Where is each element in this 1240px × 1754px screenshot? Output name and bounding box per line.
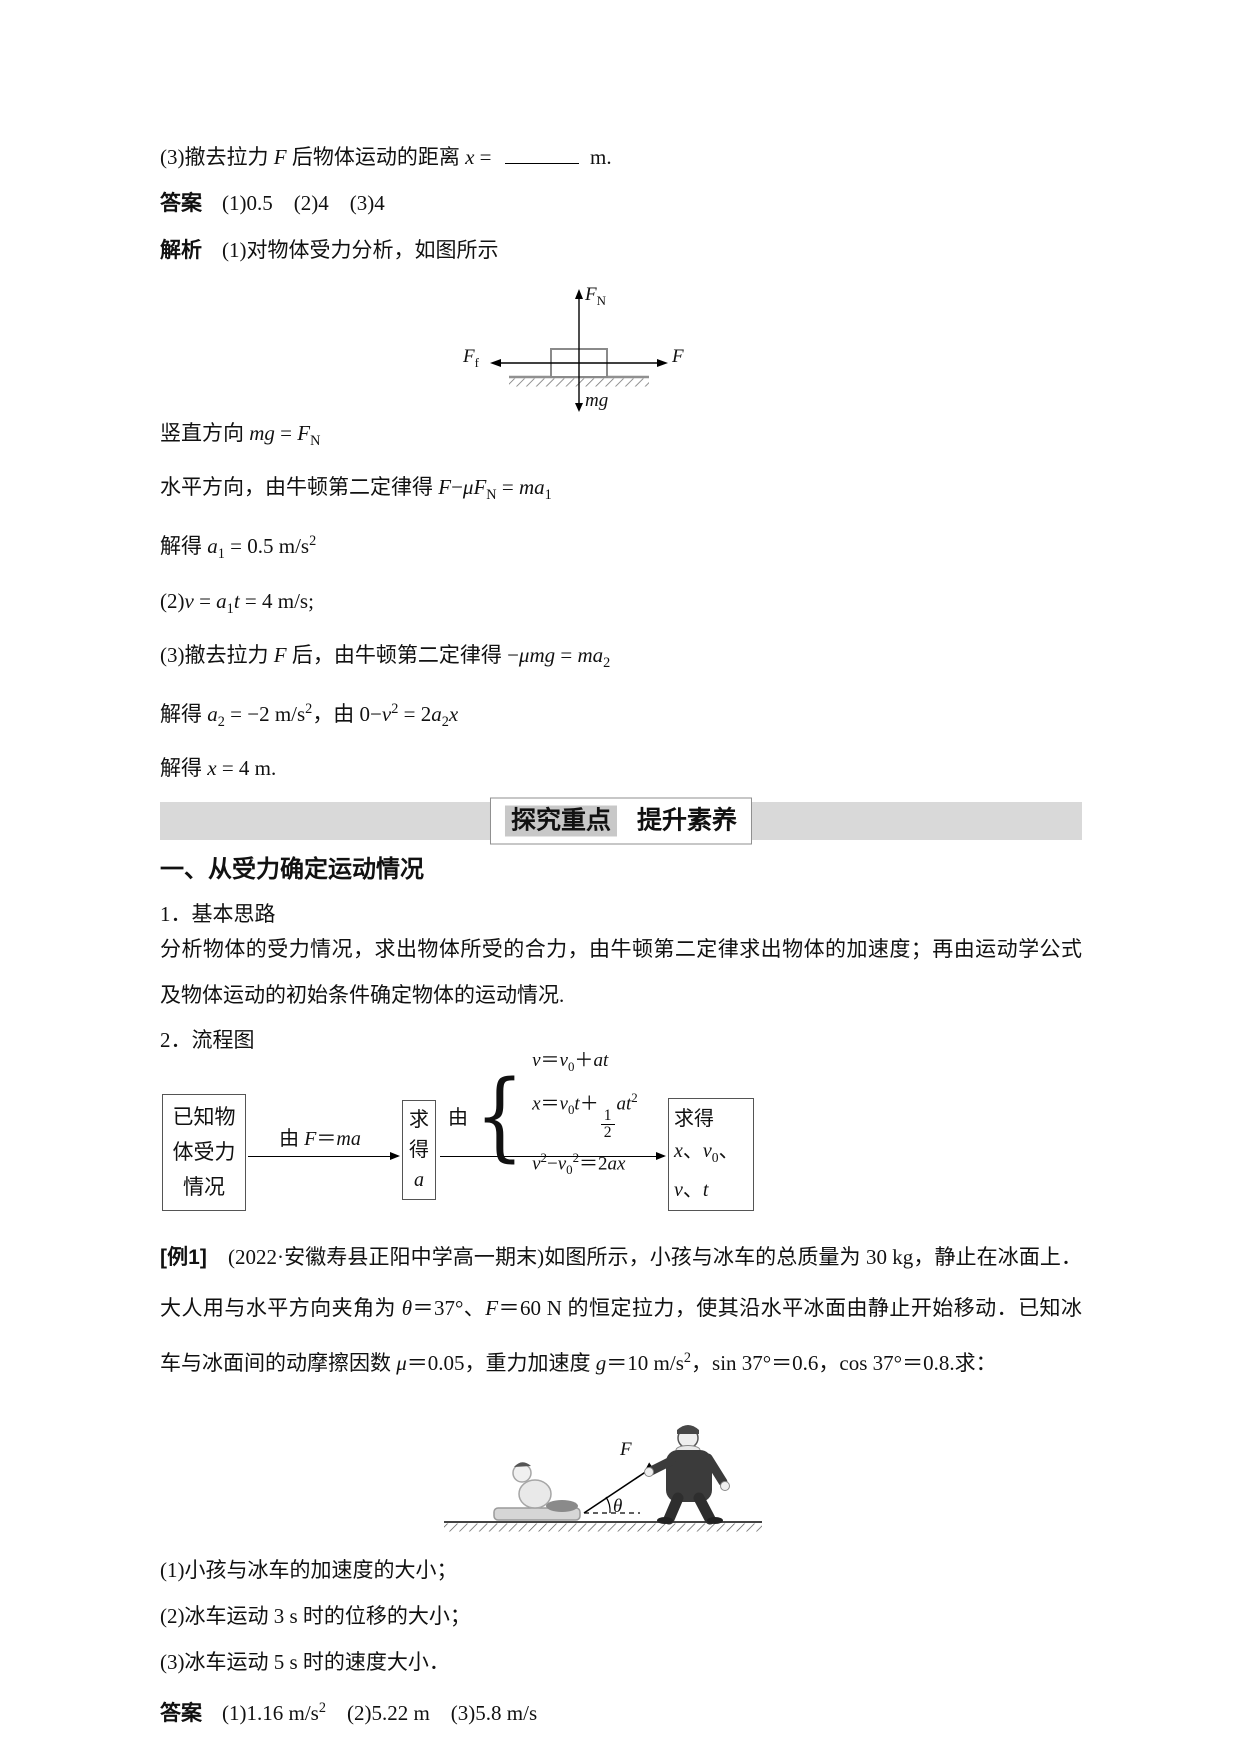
example-question-1: (1)小孩与冰车的加速度的大小； — [160, 1558, 1082, 1582]
free-body-diagram-svg — [459, 285, 699, 413]
flowchart-box-solve-motion: 求得x、v0、v、t — [668, 1098, 754, 1211]
subsection-1-title: 1．基本思路 — [160, 902, 1082, 926]
solution-step: (3)撤去拉力 F 后，由牛顿第二定律得 −μmg = ma2 — [160, 643, 1082, 675]
solution-step: 解得 a1 = 0.5 m/s2 — [160, 529, 1082, 566]
flowchart-box-solve-a: 求得a — [402, 1100, 436, 1200]
solution-step: 解得 a2 = −2 m/s2，由 0−v2 = 2a2x — [160, 697, 1082, 734]
solution-step: 水平方向，由牛顿第二定律得 F−μFN = ma1 — [160, 475, 1082, 507]
section-heading: 一、从受力确定运动情况 — [160, 856, 1082, 884]
banner-right-title: 提升素养 — [637, 809, 737, 834]
label-angle-theta: θ — [613, 1497, 622, 1516]
label-pull-force: F — [620, 1440, 632, 1459]
sled-pull-illustration-svg — [438, 1394, 768, 1544]
flowchart-box-known-forces: 已知物体受力情况 — [162, 1094, 246, 1211]
answer-label: 答案 — [160, 192, 202, 215]
free-body-diagram: FN Ff F mg — [459, 285, 699, 413]
sled-with-child — [494, 1462, 580, 1520]
equation-2: x＝v0t＋12at2 — [532, 1083, 638, 1142]
analysis-intro: (1)对物体受力分析，如图所示 — [222, 238, 499, 262]
adult-figure — [645, 1425, 730, 1524]
example-question-3: (3)冰车运动 5 s 时的速度大小． — [160, 1650, 1082, 1674]
label-friction-force: Ff — [463, 347, 479, 370]
sled-pull-illustration: F θ — [438, 1394, 768, 1544]
equation-3: v2−v02＝2ax — [532, 1143, 638, 1185]
label-gravity: mg — [585, 391, 608, 410]
flowchart-arrow-1 — [248, 1156, 398, 1157]
solution-step: (2)v = a1t = 4 m/s; — [160, 589, 1082, 621]
example-answer-line: 答案(1)1.16 m/s2 (2)5.22 m (3)5.8 m/s — [160, 1696, 1082, 1726]
document-page: (3)撤去拉力 F 后物体运动的距离 x = m. 答案(1)0.5 (2)4 … — [160, 142, 1082, 1726]
example-1-paragraph: [例1] (2022·安徽寿县正阳中学高一期末)如图所示，小孩与冰车的总质量为 … — [160, 1232, 1082, 1388]
example-answer-values: (1)1.16 m/s2 (2)5.22 m (3)5.8 m/s — [222, 1701, 537, 1725]
basic-idea-paragraph: 分析物体的受力情况，求出物体所受的合力，由牛顿第二定律求出物体的加速度；再由运动… — [160, 926, 1082, 1018]
analysis-line: 解析(1)对物体受力分析，如图所示 — [160, 238, 1082, 263]
question-3-line: (3)撤去拉力 F 后物体运动的距离 x = m. — [160, 142, 1082, 169]
flowchart-arrow-1-label: 由 F＝ma — [240, 1122, 400, 1151]
kinematics-equations: v＝v0＋at x＝v0t＋12at2 v2−v02＝2ax — [532, 1046, 638, 1185]
answer-line-1: 答案(1)0.5 (2)4 (3)4 — [160, 191, 1082, 216]
section-banner: 探究重点提升素养 — [160, 802, 1082, 840]
example-question-2: (2)冰车运动 3 s 时的位移的大小； — [160, 1604, 1082, 1628]
banner-left-title: 探究重点 — [505, 806, 617, 837]
label-applied-force: F — [672, 347, 684, 366]
solution-step: 解得 x = 4 m. — [160, 756, 1082, 780]
example-answer-label: 答案 — [160, 1702, 202, 1725]
section-banner-box: 探究重点提升素养 — [490, 798, 752, 845]
flowchart: 已知物体受力情况 由 F＝ma 求得a 由 { v＝v0＋at x＝v0t＋12… — [162, 1060, 1082, 1218]
flowchart-by-label: 由 — [448, 1101, 468, 1130]
answer-values: (1)0.5 (2)4 (3)4 — [222, 191, 385, 215]
equation-1: v＝v0＋at — [532, 1046, 638, 1082]
force-arrows — [490, 289, 668, 412]
flowchart-equations-group: 由 { v＝v0＋at x＝v0t＋12at2 v2−v02＝2ax — [448, 1046, 638, 1185]
solution-step: 竖直方向 mg = FN — [160, 421, 1082, 453]
brace-icon: { — [475, 1066, 524, 1166]
label-normal-force: FN — [585, 285, 606, 308]
analysis-label: 解析 — [160, 239, 202, 262]
